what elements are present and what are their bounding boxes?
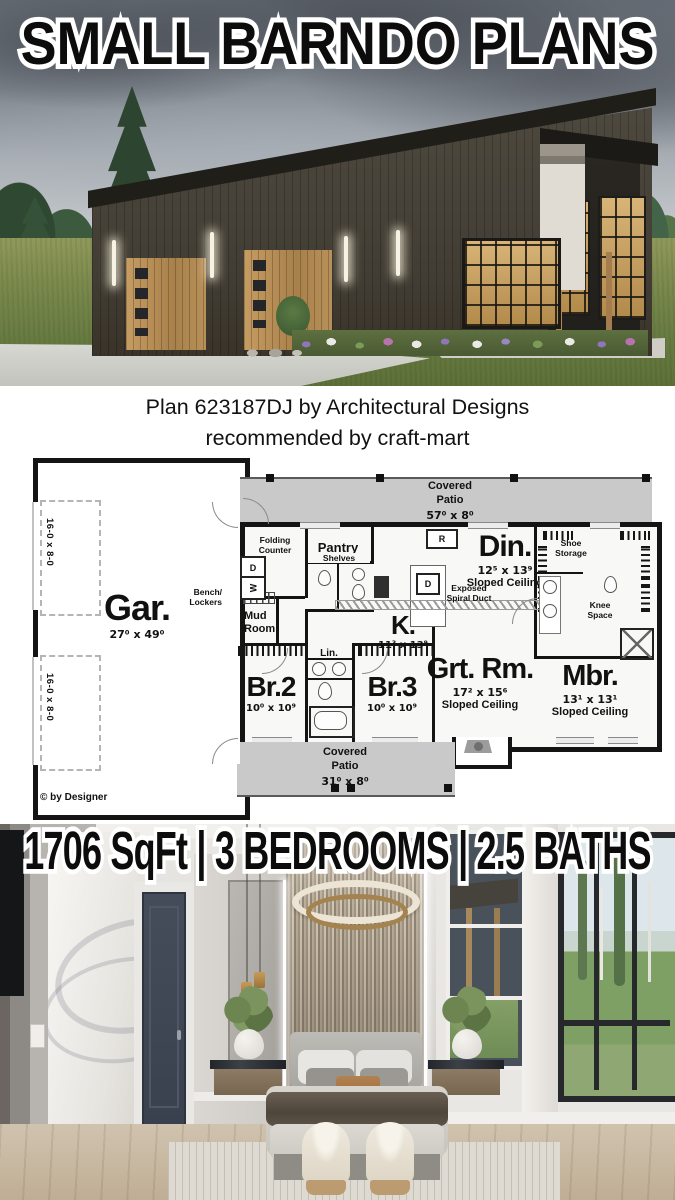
copyright-note: © by Designer [40,792,107,803]
patio-bottom-dims: 31⁰ x 8⁰ [285,775,405,789]
patio-post [444,784,452,792]
garage-door-left [126,258,206,350]
patio-bottom-name: Covered Patio [285,746,405,774]
pendant-light [254,972,265,988]
bathtub-basin [314,711,347,730]
led-cove-light [424,860,427,1092]
window-view-birch [600,888,603,980]
garage-door-size-label: 16-0 x 8-0 [44,518,55,566]
garage-door-panel [32,657,34,765]
caption: Plan 623187DJ by Architectural Designs r… [0,388,675,456]
pin-image: SMALL BARNDO PLANS SMALL BARNDO PLANS Pl… [0,0,675,1200]
garage-dims: 27⁰ x 49⁰ [70,629,204,640]
patio-top-name: Covered Patio [388,480,512,508]
knee-space-label: Knee Space [578,600,622,620]
room-label-bedroom3: Br.3 10⁰ x 10⁹ [350,673,434,714]
room-label-kitchen: K. 11³ x 13⁹ [372,612,434,651]
door-handle [177,1030,181,1040]
window-mullion [558,1020,670,1026]
bedroom3-dims: 10⁰ x 10⁹ [350,704,434,714]
garage-door-panel [32,502,34,610]
washer-box: W [240,576,266,600]
folding-counter-label: Folding Counter [243,535,307,555]
garage-door-windows [135,268,148,336]
floor-plan: 16-0 x 8-0 16-0 x 8-0 Gar. 27⁰ x 49⁰ © b… [0,452,675,824]
facade-window [462,238,561,329]
fireplace-flue [474,742,483,751]
dining-name: Din. [450,532,560,562]
page-title: SMALL BARNDO PLANS SMALL BARNDO PLANS [7,8,669,78]
door-inset-panel [149,906,179,1108]
great-room-name: Grt. Rm. [420,655,540,684]
shower-stall [620,628,654,660]
room-label-great-room: Grt. Rm. 17² x 15⁶ Sloped Ceiling [420,655,540,711]
tv-screen [0,830,24,996]
window-symbol [608,737,638,744]
interior-wall [371,527,374,563]
patio-post [642,474,650,482]
patio-top-dims: 57⁰ x 8⁰ [388,509,512,523]
sink-fixture [543,604,557,618]
wall-sconce [210,232,214,278]
wall-sconce [344,236,348,282]
ring-chandelier-lower [306,894,408,930]
closet-rod [620,531,650,540]
sink-fixture [312,662,326,676]
master-dims: 13¹ x 13¹ [532,694,648,705]
kitchen-name: K. [372,612,434,638]
caption-line2: recommended by craft-mart [0,423,675,454]
stats-bar: 1706 SqFt | 3 BEDROOMS | 2.5 BATHS 1706 … [68,820,608,882]
master-note: Sloped Ceiling [532,707,648,718]
wall-sconce [112,240,116,286]
page-title-text: SMALL BARNDO PLANS [21,8,655,78]
stats-text: 1706 SqFt | 3 BEDROOMS | 2.5 BATHS [24,820,650,882]
dishwasher-box: D [416,573,440,595]
bench-lockers-label: Bench/ Lockers [158,587,222,607]
caption-line1: Plan 623187DJ by Architectural Designs [0,392,675,423]
plant-foliage [222,986,274,1034]
patio-top-label: Covered Patio 57⁰ x 8⁰ [388,480,512,522]
mud-room-label: Mud Room [244,610,288,636]
interior-wall [305,678,355,680]
bedroom3-name: Br.3 [350,673,434,701]
ottoman-right [366,1122,414,1184]
nightstand-marble-top [210,1060,286,1069]
bedroom2-name: Br.2 [236,673,306,701]
sink-fixture [543,580,557,594]
window-symbol [468,522,508,529]
sink-fixture [352,568,365,581]
ottoman-left [302,1122,350,1184]
refrigerator-label: R [439,534,446,544]
sink-fixture [332,662,346,676]
nightstand-marble-top [428,1060,504,1069]
wall-sconce [396,230,400,276]
toilet-fixture [318,682,332,700]
plant-pot [452,1029,482,1059]
patio-post [376,474,384,482]
shelves-label: Shelves [308,553,370,563]
plant-pot [234,1029,264,1059]
plant-foliage [440,986,492,1034]
patio-post [331,784,339,792]
patio-post [347,784,355,792]
dining-dims: 12⁵ x 13⁹ [450,565,560,576]
toilet-fixture [604,576,617,593]
washer-label: W [248,584,258,593]
bedroom2-dims: 10⁰ x 10⁹ [236,704,306,714]
master-name: Mbr. [532,662,648,691]
window-view-birch [648,882,651,982]
ottoman-base [370,1180,410,1195]
garage-door-size-label: 16-0 x 8-0 [44,673,55,721]
garage-door-windows [253,260,266,328]
window-symbol [300,522,340,529]
closet-rod [641,584,650,612]
flower-bed [292,330,648,356]
fur-throw [266,1092,448,1126]
window-view-post [494,908,500,1002]
toilet-fixture [352,584,365,600]
landscape-rocks [238,346,310,360]
patio-post [266,474,274,482]
light-switch [30,1024,45,1048]
bed-platform [274,1154,440,1180]
toilet-fixture [318,570,331,586]
window-symbol [556,737,594,744]
dishwasher-label: D [425,579,432,589]
great-room-dims: 17² x 15⁶ [420,687,540,698]
great-room-note: Sloped Ceiling [420,700,540,711]
window-mullion [446,924,522,928]
linen-label: Lin. [309,648,349,659]
dryer-label: D [250,563,257,573]
closet-rod [641,546,650,580]
room-label-master: Mbr. 13¹ x 13¹ Sloped Ceiling [532,662,648,718]
range-box [374,576,389,598]
ottoman-base [306,1180,346,1195]
patio-bottom-label: Covered Patio 31⁰ x 8⁰ [285,746,405,788]
room-label-bedroom2: Br.2 10⁰ x 10⁹ [236,673,306,714]
window-symbol [590,522,620,529]
